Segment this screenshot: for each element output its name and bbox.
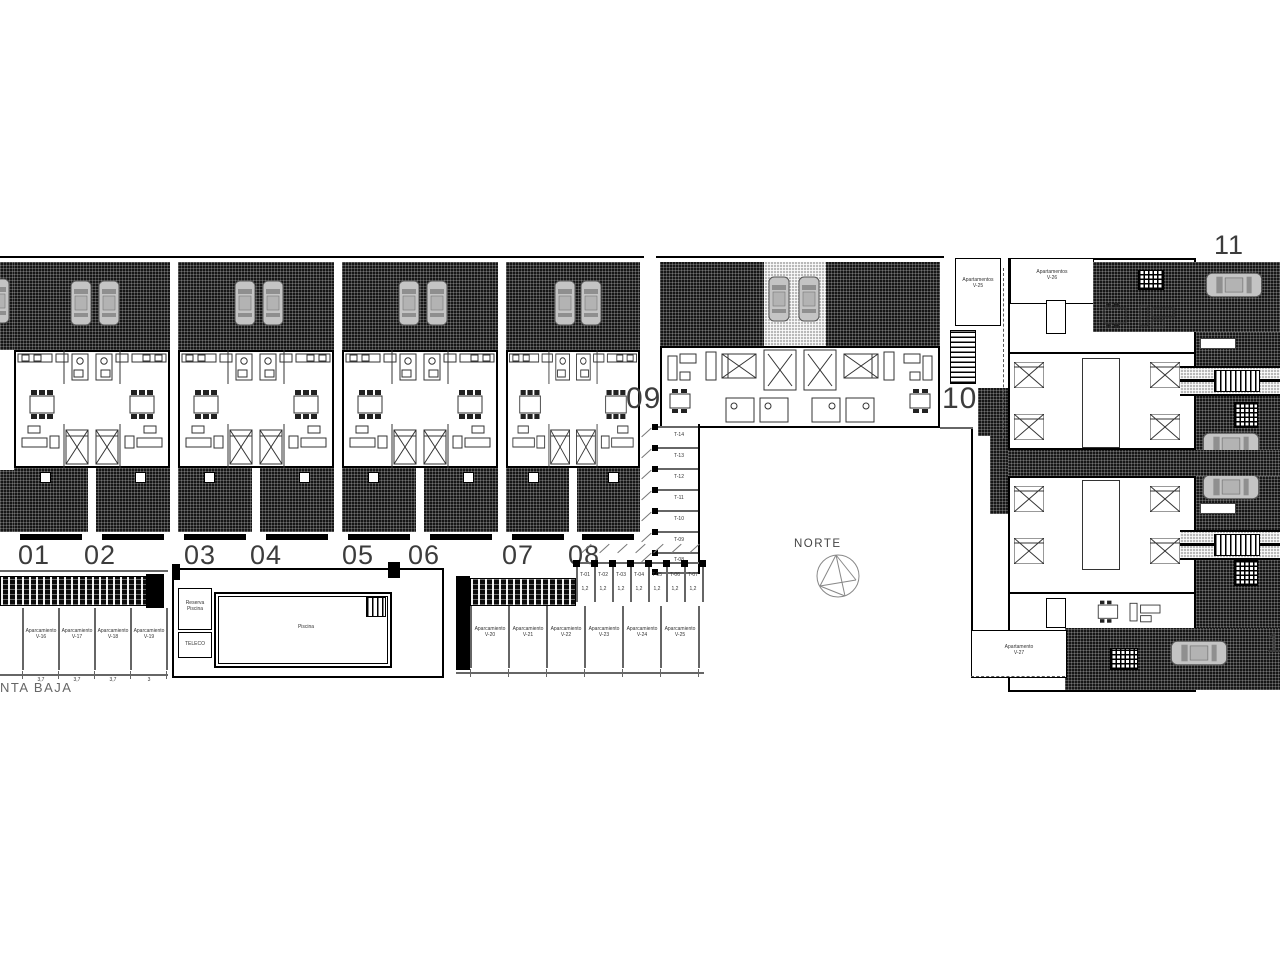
apartment-box-line2: V-25 bbox=[956, 283, 1000, 289]
bay-dimension: 3 bbox=[132, 677, 166, 683]
bath-core bbox=[1082, 358, 1120, 448]
north-label: NORTE bbox=[794, 538, 842, 550]
car-icon bbox=[1202, 474, 1260, 500]
furniture bbox=[660, 346, 940, 428]
moto-stall-label: T-04 bbox=[631, 572, 647, 578]
car-icon bbox=[70, 280, 92, 326]
floor-plan-canvas: 01 02 03 04 05 06 07 08 09 10 Apartament… bbox=[0, 0, 1280, 960]
stall-label: T-11 bbox=[664, 495, 694, 501]
moto-stall-label: T-02 bbox=[595, 572, 611, 578]
parking-bay-v24: Aparcamiento V-24 bbox=[624, 626, 660, 638]
furniture bbox=[342, 350, 498, 468]
terrace-chip bbox=[1200, 338, 1236, 349]
bay-dimension: 3,7 bbox=[96, 677, 130, 683]
moto-stall-width: 1,2 bbox=[649, 586, 665, 592]
living-furniture bbox=[1085, 598, 1175, 628]
stall-label: T-14 bbox=[664, 432, 694, 438]
parking-bay-v22: Aparcamiento V-22 bbox=[548, 626, 584, 638]
dimension-line bbox=[456, 672, 704, 674]
stall-label: T-12 bbox=[664, 474, 694, 480]
bed bbox=[1150, 486, 1180, 512]
moto-stall-width: 1,2 bbox=[613, 586, 629, 592]
car-icon bbox=[262, 280, 284, 326]
plan-title-partial: NTA BAJA bbox=[0, 680, 72, 695]
stairs-icon bbox=[1214, 534, 1260, 556]
stall-label: T-09 bbox=[664, 537, 694, 543]
car-icon bbox=[1170, 640, 1228, 666]
terrace-fixture bbox=[1234, 402, 1258, 428]
stall-label: T-13 bbox=[664, 453, 694, 459]
car-icon bbox=[0, 278, 10, 324]
pool-enclosure: Reserva Piscina TELECO Piscina bbox=[172, 568, 444, 678]
parking-bay-v17: Aparcamiento V-17 bbox=[60, 628, 94, 640]
moto-stall-label: T-03 bbox=[613, 572, 629, 578]
unit-pair-03-04 bbox=[178, 258, 334, 542]
unit-number-12-partial: 1 bbox=[1266, 628, 1280, 659]
car-icon bbox=[234, 280, 256, 326]
mid-roof-line bbox=[656, 256, 944, 258]
kitchen bbox=[1046, 300, 1066, 334]
bike-stall-band bbox=[470, 578, 576, 606]
apartment-box-v27: Apartamento V-27 bbox=[971, 630, 1067, 678]
unit-pair-07-08 bbox=[506, 258, 640, 542]
pool-plant-room: Reserva Piscina bbox=[178, 588, 212, 630]
boundary-dashed bbox=[1003, 268, 1004, 438]
paving-patch bbox=[990, 436, 1008, 514]
parking-bay-v20: Aparcamiento V-20 bbox=[472, 626, 508, 638]
car-icon bbox=[1205, 272, 1263, 298]
apartment-box-line2: V-26 bbox=[1011, 275, 1093, 281]
apartment-box-v26: Apartamentos V-26 bbox=[1010, 258, 1094, 304]
courtyard-wall bbox=[971, 428, 973, 632]
moto-stall-label: T-05 bbox=[649, 572, 665, 578]
bed bbox=[1150, 414, 1180, 440]
moto-stall-width: 1,2 bbox=[685, 586, 701, 592]
compass-icon bbox=[812, 550, 864, 602]
moto-stall-width: 1,2 bbox=[631, 586, 647, 592]
central-corridor bbox=[1008, 450, 1280, 476]
wall-block bbox=[456, 576, 470, 670]
unit-number-09: 09 bbox=[626, 382, 661, 416]
car-icon bbox=[554, 280, 576, 326]
roof-terrace bbox=[178, 262, 334, 350]
bed bbox=[1014, 486, 1044, 512]
terrace-chip bbox=[1200, 503, 1236, 514]
stairs-icon bbox=[1214, 370, 1260, 392]
stairs-icon bbox=[950, 330, 976, 384]
moto-stall-row: T-01 T-02 T-03 T-04 T-05 T-06 T-07 1,2 1… bbox=[576, 560, 704, 602]
terrace-fixture bbox=[1110, 648, 1138, 670]
parking-bay-v16: Aparcamiento V-16 bbox=[24, 628, 58, 640]
living-furniture bbox=[1095, 300, 1185, 334]
kitchen bbox=[1046, 598, 1066, 628]
unit-number-10: 10 bbox=[942, 382, 977, 416]
parking-bay-v21: Aparcamiento V-21 bbox=[510, 626, 546, 638]
unit-number-11: 11 bbox=[1214, 230, 1244, 261]
car-icon bbox=[398, 280, 420, 326]
bed bbox=[1014, 538, 1044, 564]
stall-label: T-10 bbox=[664, 516, 694, 522]
bed bbox=[1150, 538, 1180, 564]
moto-stall-label: T-06 bbox=[667, 572, 683, 578]
roof-terrace bbox=[342, 262, 498, 350]
bed bbox=[1150, 362, 1180, 388]
furniture bbox=[178, 350, 334, 468]
moto-stall-label: T-07 bbox=[685, 572, 701, 578]
terrace-fixture bbox=[1138, 270, 1164, 290]
furniture bbox=[506, 350, 640, 468]
car-icon bbox=[798, 276, 820, 322]
bike-stall-band bbox=[0, 576, 148, 606]
unit-number-03: 03 bbox=[184, 540, 216, 571]
bed bbox=[1014, 414, 1044, 440]
pool-steps-icon bbox=[366, 597, 386, 617]
car-icon bbox=[580, 280, 602, 326]
unit-number-05: 05 bbox=[342, 540, 374, 571]
roof-terrace bbox=[14, 262, 170, 350]
unit-number-01: 01 bbox=[18, 540, 50, 571]
bed bbox=[1014, 362, 1044, 388]
unit-number-04: 04 bbox=[250, 540, 282, 571]
partial-unit-left bbox=[0, 260, 14, 540]
unit-number-02: 02 bbox=[84, 540, 116, 571]
unit-pair-05-06 bbox=[342, 258, 498, 542]
unit-pair-01-02 bbox=[14, 258, 170, 542]
apartment-box-line2: V-27 bbox=[972, 650, 1066, 656]
pool: Piscina bbox=[214, 592, 392, 668]
parking-bay-v25: Aparcamiento V-25 bbox=[662, 626, 698, 638]
car-icon bbox=[768, 276, 790, 322]
boundary-dashed bbox=[971, 676, 1065, 677]
moto-stall-width: 1,2 bbox=[595, 586, 611, 592]
moto-stall-width: 1,2 bbox=[577, 586, 593, 592]
unit-number-06: 06 bbox=[408, 540, 440, 571]
utility-room: TELECO bbox=[178, 632, 212, 658]
parking-bay-v18: Aparcamiento V-18 bbox=[96, 628, 130, 640]
moto-stall-width: 1,2 bbox=[667, 586, 683, 592]
car-icon bbox=[98, 280, 120, 326]
unit-number-07: 07 bbox=[502, 540, 534, 571]
parking-bay-v19: Aparcamiento V-19 bbox=[132, 628, 166, 640]
apartment-box-v25: Apartamentos V-25 bbox=[955, 258, 1001, 326]
pool-label: Piscina bbox=[276, 624, 336, 630]
moto-stall-label: T-01 bbox=[577, 572, 593, 578]
bath-core bbox=[1082, 480, 1120, 570]
parking-bay-v23: Aparcamiento V-23 bbox=[586, 626, 622, 638]
car-icon bbox=[426, 280, 448, 326]
furniture bbox=[14, 350, 170, 468]
terrace-fixture bbox=[1234, 560, 1258, 586]
dimension-line bbox=[0, 674, 168, 676]
